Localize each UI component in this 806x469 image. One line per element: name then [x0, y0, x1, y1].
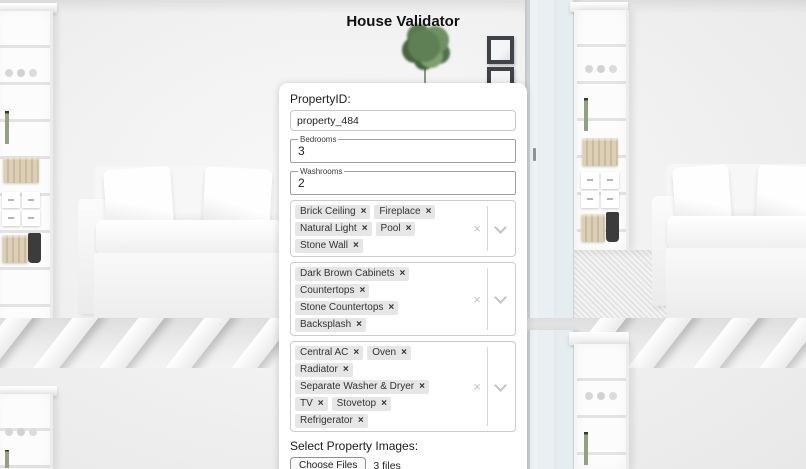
dark-bag	[28, 233, 41, 263]
remove-tag-icon[interactable]: ×	[400, 347, 408, 358]
sofa-seat	[96, 220, 282, 254]
tag-label: Radiator	[300, 364, 338, 375]
sofa-left	[78, 166, 282, 330]
select-images-label: Select Property Images:	[290, 439, 516, 453]
tag-chip: Backsplash×	[295, 318, 366, 332]
basket	[581, 214, 605, 242]
bookshelf-right	[574, 10, 629, 250]
tag-chip: TV×	[295, 397, 328, 411]
page-title: House Validator	[0, 13, 806, 30]
drawer-boxes	[2, 192, 40, 226]
books	[5, 450, 35, 468]
remove-tag-icon[interactable]: ×	[361, 223, 369, 234]
multiselect-kitchen[interactable]: Dark Brown Cabinets× Countertops× Stone …	[290, 262, 516, 336]
indicator-separator	[487, 206, 488, 251]
chevron-down-icon[interactable]	[494, 221, 507, 234]
remove-tag-icon[interactable]: ×	[418, 381, 426, 392]
tag-label: Natural Light	[300, 223, 357, 234]
bookshelf-left	[0, 11, 53, 332]
bookshelf-right-lower	[574, 344, 629, 469]
multiselect-features[interactable]: Brick Ceiling× Fireplace× Natural Light×…	[290, 200, 516, 257]
sofa-pillow	[756, 164, 806, 224]
remove-tag-icon[interactable]: ×	[358, 285, 366, 296]
app: House Validator PropertyID: Bedrooms Was…	[0, 0, 806, 469]
tag-chip: Brick Ceiling×	[295, 205, 370, 219]
glassware	[585, 65, 593, 73]
basket	[582, 138, 618, 166]
tag-label: Central AC	[300, 347, 348, 358]
remove-tag-icon[interactable]: ×	[360, 206, 368, 217]
remove-tag-icon[interactable]: ×	[317, 398, 325, 409]
tag-chip: Stone Wall×	[295, 239, 363, 253]
tag-label: Separate Washer & Dryer	[300, 381, 414, 392]
washrooms-input[interactable]	[297, 176, 510, 191]
tag-label: Stone Countertops	[300, 302, 383, 313]
tag-chip: Natural Light×	[295, 222, 372, 236]
sofa-right	[652, 164, 806, 322]
tag-label: Dark Brown Cabinets	[300, 268, 394, 279]
tag-chip: Refrigerator×	[295, 414, 368, 428]
picture-frame	[487, 36, 514, 64]
books	[584, 432, 614, 465]
remove-tag-icon[interactable]: ×	[357, 415, 365, 426]
ceiling-beam	[753, 318, 806, 368]
ceiling-beam	[0, 318, 37, 368]
validator-form: PropertyID: Bedrooms Washrooms Brick Cei…	[279, 83, 527, 469]
selected-tags: Brick Ceiling× Fireplace× Natural Light×…	[291, 201, 465, 256]
indicator-separator	[487, 268, 488, 330]
remove-tag-icon[interactable]: ×	[352, 347, 360, 358]
washrooms-fieldset: Washrooms	[290, 167, 516, 195]
books	[584, 98, 614, 131]
tag-label: Stovetop	[337, 398, 376, 409]
tag-label: TV	[300, 398, 313, 409]
tag-chip: Separate Washer & Dryer×	[295, 380, 429, 394]
clear-icon[interactable]: ×	[467, 379, 487, 394]
ceiling-beam	[93, 318, 169, 368]
sofa-pillow	[203, 166, 273, 228]
tag-label: Oven	[372, 347, 396, 358]
door-handle	[533, 148, 536, 161]
remove-tag-icon[interactable]: ×	[342, 364, 350, 375]
tag-chip: Oven×	[367, 346, 411, 360]
tag-chip: Stone Countertops×	[295, 301, 398, 315]
property-id-input[interactable]	[290, 110, 516, 131]
tag-chip: Pool×	[376, 222, 416, 236]
glass-door-lower	[525, 330, 577, 469]
tag-chip: Radiator×	[295, 363, 353, 377]
glassware	[5, 69, 13, 77]
choose-files-button[interactable]: Choose Files	[290, 457, 366, 469]
ceiling-shadow	[0, 0, 806, 14]
remove-tag-icon[interactable]: ×	[398, 268, 406, 279]
basket	[2, 235, 28, 263]
tag-chip: Stovetop×	[332, 397, 391, 411]
ceiling-beam	[159, 318, 235, 368]
remove-tag-icon[interactable]: ×	[405, 223, 413, 234]
tag-label: Refrigerator	[300, 415, 353, 426]
tag-label: Fireplace	[379, 206, 420, 217]
file-input: Choose Files 3 files	[290, 457, 516, 469]
chevron-down-icon[interactable]	[494, 291, 507, 304]
drawer-boxes	[581, 172, 619, 208]
file-count: 3 files	[373, 460, 400, 469]
ceiling-beam	[27, 318, 103, 368]
bookshelf-left-lower	[0, 394, 53, 469]
selected-tags: Dark Brown Cabinets× Countertops× Stone …	[291, 263, 465, 335]
tag-label: Countertops	[300, 285, 354, 296]
tag-label: Backsplash	[300, 319, 351, 330]
glassware	[585, 392, 593, 400]
bedrooms-label: Bedrooms	[298, 135, 338, 144]
chevron-down-icon[interactable]	[494, 379, 507, 392]
plant-upper	[408, 30, 440, 62]
washrooms-label: Washrooms	[298, 167, 344, 176]
remove-tag-icon[interactable]: ×	[387, 302, 395, 313]
books	[5, 111, 35, 144]
ceiling-beam	[687, 318, 763, 368]
indicator-separator	[487, 347, 488, 426]
glass-door-upper	[525, 0, 577, 330]
remove-tag-icon[interactable]: ×	[355, 319, 363, 330]
select-indicators: ×	[465, 201, 515, 256]
clear-icon[interactable]: ×	[467, 221, 487, 236]
remove-tag-icon[interactable]: ×	[352, 240, 360, 251]
sofa-seat	[667, 216, 806, 249]
clear-icon[interactable]: ×	[467, 292, 487, 307]
remove-tag-icon[interactable]: ×	[380, 398, 388, 409]
dark-bag	[606, 212, 619, 242]
tag-chip: Fireplace×	[374, 205, 435, 219]
tag-chip: Dark Brown Cabinets×	[295, 267, 409, 281]
tag-chip: Countertops×	[295, 284, 369, 298]
multiselect-appliances[interactable]: Central AC× Oven× Radiator× Separate Was…	[290, 341, 516, 432]
remove-tag-icon[interactable]: ×	[425, 206, 433, 217]
ceiling-beam	[621, 318, 697, 368]
tag-label: Brick Ceiling	[300, 206, 356, 217]
selected-tags: Central AC× Oven× Radiator× Separate Was…	[291, 342, 465, 431]
tag-label: Stone Wall	[300, 240, 348, 251]
basket	[3, 157, 39, 183]
select-indicators: ×	[465, 263, 515, 335]
bedrooms-fieldset: Bedrooms	[290, 135, 516, 163]
glassware	[5, 428, 13, 436]
select-indicators: ×	[465, 342, 515, 431]
bedrooms-input[interactable]	[297, 144, 510, 159]
tag-chip: Central AC×	[295, 346, 363, 360]
tag-label: Pool	[381, 223, 401, 234]
property-id-label: PropertyID:	[290, 92, 516, 106]
sofa-base	[666, 248, 806, 322]
